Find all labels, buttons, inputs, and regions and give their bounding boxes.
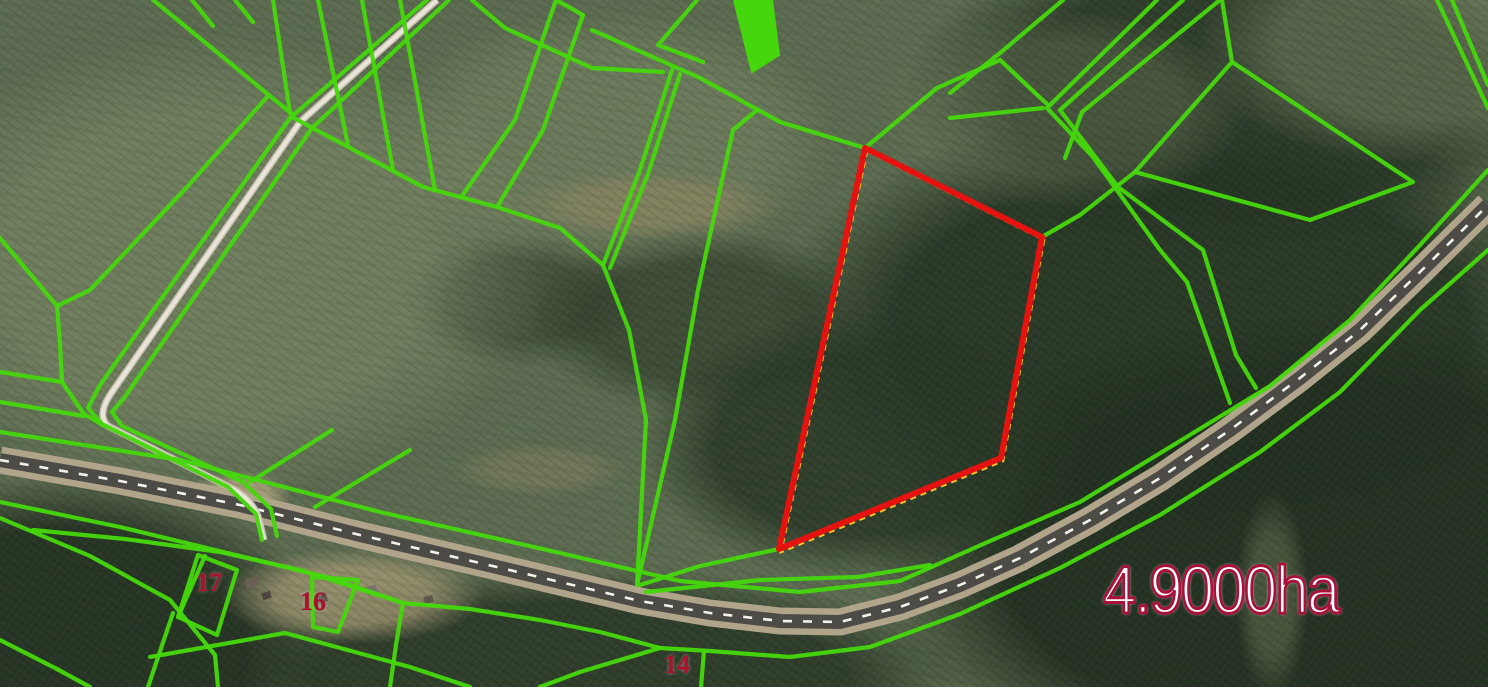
selected-parcel-outline[interactable] (779, 148, 1042, 549)
parcel-number-label: 14 (664, 652, 690, 678)
parcel-number-label: 16 (300, 589, 326, 615)
parcel-number-label: 17 (196, 570, 222, 596)
track-layer (103, 0, 437, 540)
map-canvas[interactable]: 4.9000ha 171614 (0, 0, 1488, 687)
parcel-area-label: 4.9000ha (1103, 556, 1339, 624)
selected-parcel-layer (779, 148, 1044, 552)
